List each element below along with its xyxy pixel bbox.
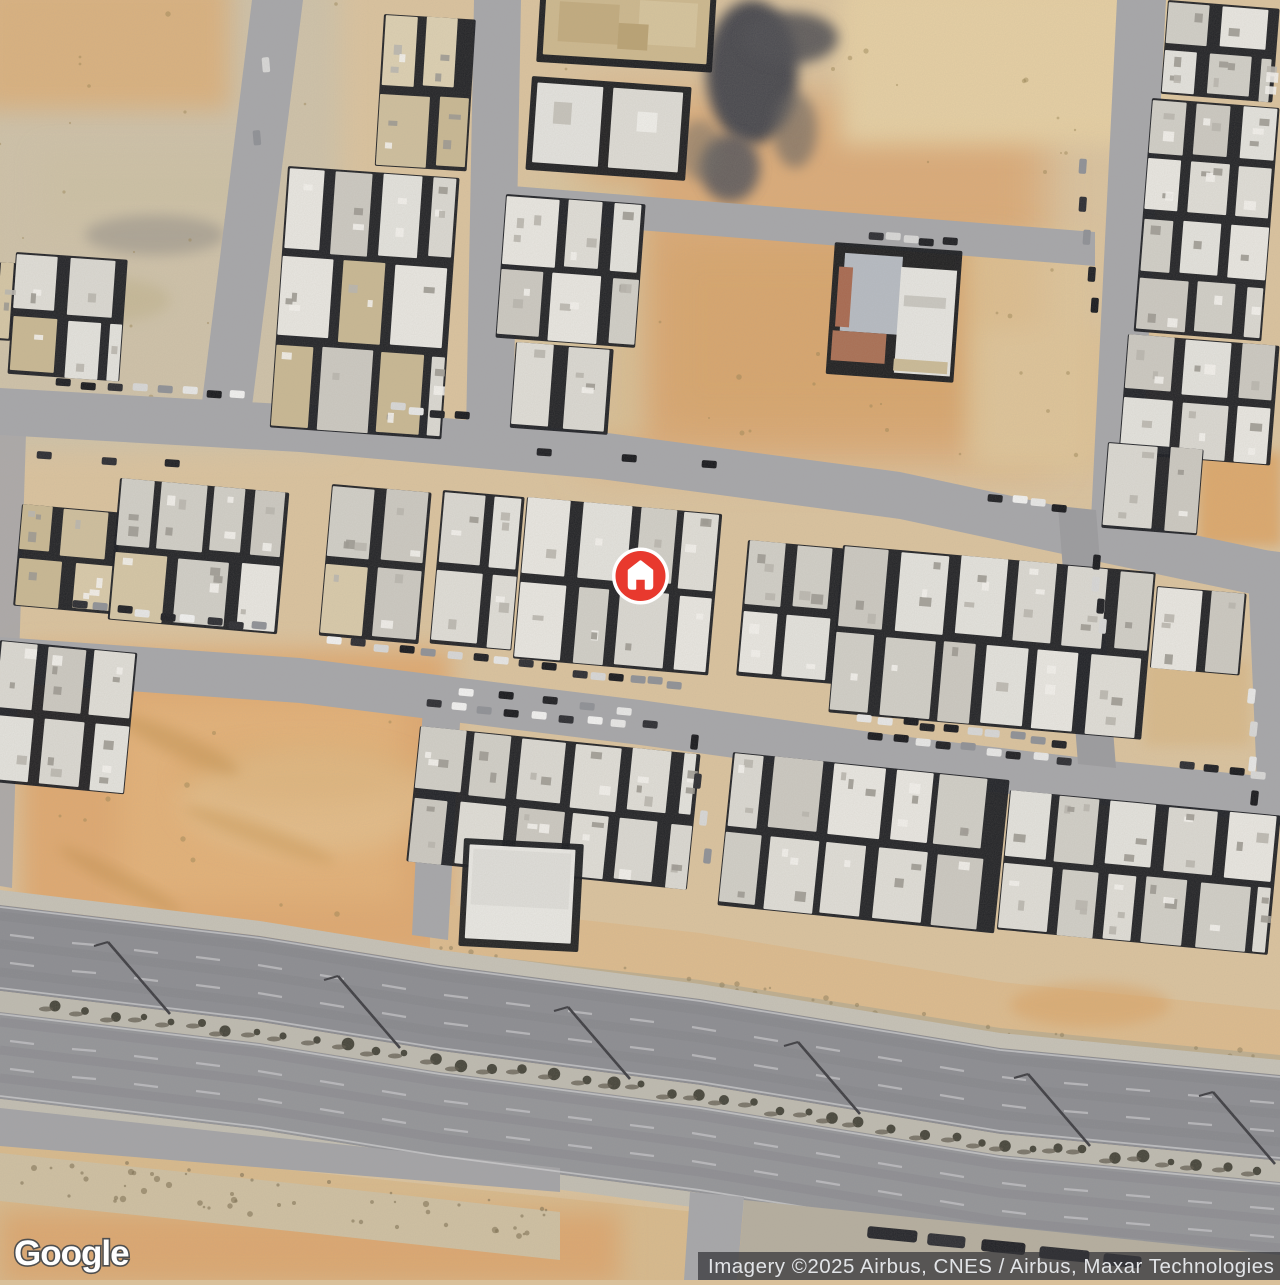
- svg-text:Google: Google: [14, 1234, 129, 1273]
- svg-text:Imagery ©2025 Airbus, CNES / A: Imagery ©2025 Airbus, CNES / Airbus, Max…: [708, 1255, 1274, 1278]
